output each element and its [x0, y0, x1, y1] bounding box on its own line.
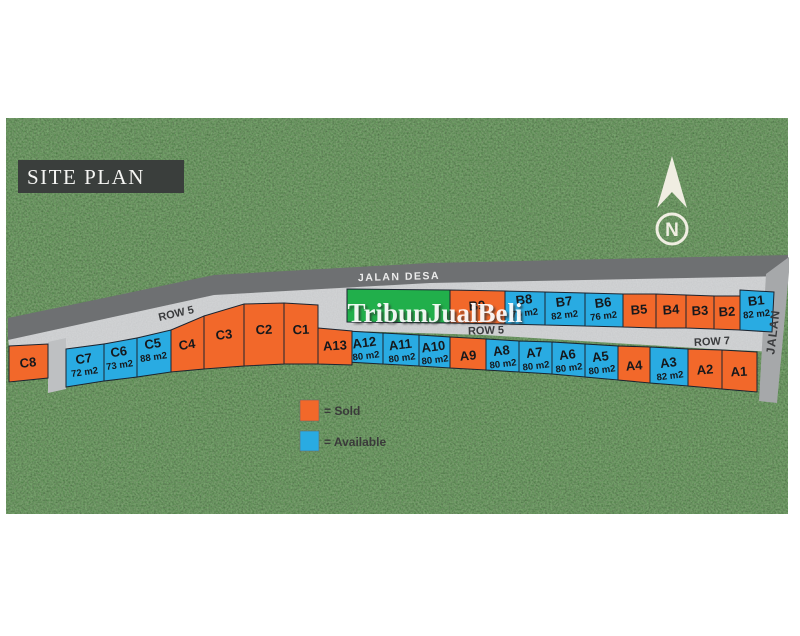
site-plan-image: C8 C7 72 m2 C6 73 m2 C5 88 m2 C4 C3 C2 C… [0, 0, 800, 636]
lot-a5-label: A5 [591, 348, 609, 365]
lot-c2-label: C2 [255, 322, 272, 338]
lot-a8-label: A8 [492, 342, 510, 359]
compass-north-label: N [665, 220, 679, 241]
lot-a4-label: A4 [625, 357, 644, 373]
legend-sold-swatch [300, 400, 319, 421]
lot-c7-label: C7 [74, 350, 93, 367]
legend-available-swatch [300, 431, 319, 451]
lot-a7-label: A7 [525, 344, 543, 361]
lot-b2-label: B2 [718, 304, 735, 320]
lot-c8-label: C8 [19, 354, 37, 371]
title-block: SITE PLAN [18, 160, 184, 193]
lot-c5-label: C5 [143, 335, 162, 352]
lot-b4-label: B4 [662, 301, 680, 317]
lot-a10-label: A10 [421, 338, 447, 356]
lot-a6-label: A6 [558, 346, 576, 363]
lot-a9-label: A9 [459, 347, 477, 363]
jalan-desa-label: JALAN DESA [358, 270, 440, 284]
lot-a13-label: A13 [323, 337, 348, 353]
legend-available-label: = Available [324, 435, 386, 449]
lot-a3-label: A3 [659, 354, 677, 371]
lot-a11-label: A11 [388, 336, 413, 354]
legend-sold-label: = Sold [324, 404, 360, 418]
watermark: TribunJualBeli [347, 298, 523, 328]
lot-a12-label: A12 [352, 334, 378, 352]
lot-b3-label: B3 [691, 303, 708, 319]
row7-label: ROW 7 [694, 335, 731, 349]
lot-b5-label: B5 [630, 301, 648, 317]
lot-a2-label: A2 [696, 361, 714, 377]
lot-c6-label: C6 [109, 343, 128, 360]
lot-c1-label: C1 [292, 322, 309, 338]
lot-b6-label: B6 [594, 294, 612, 311]
lot-a1-label: A1 [730, 364, 747, 380]
page-title: SITE PLAN [27, 165, 145, 189]
lot-b7-label: B7 [555, 293, 573, 310]
lot-c4-label: C4 [178, 336, 197, 353]
access-road-strip [48, 338, 66, 393]
lot-c3-label: C3 [215, 326, 233, 343]
lot-b1-label: B1 [747, 292, 765, 309]
